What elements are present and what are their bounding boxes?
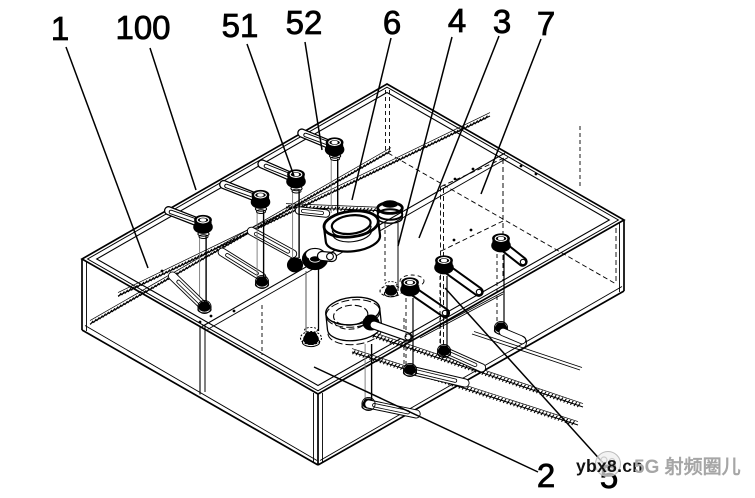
svg-text:6: 6 [383, 4, 401, 41]
svg-text:2: 2 [537, 457, 555, 494]
svg-text:51: 51 [222, 7, 259, 44]
svg-text:3: 3 [493, 3, 511, 40]
svg-text:5G 射频圈儿: 5G 射频圈儿 [634, 455, 741, 478]
svg-text:100: 100 [115, 9, 170, 46]
svg-text:7: 7 [537, 5, 555, 42]
svg-text:1: 1 [51, 10, 69, 47]
svg-text:52: 52 [286, 4, 323, 41]
svg-text:4: 4 [448, 2, 466, 39]
